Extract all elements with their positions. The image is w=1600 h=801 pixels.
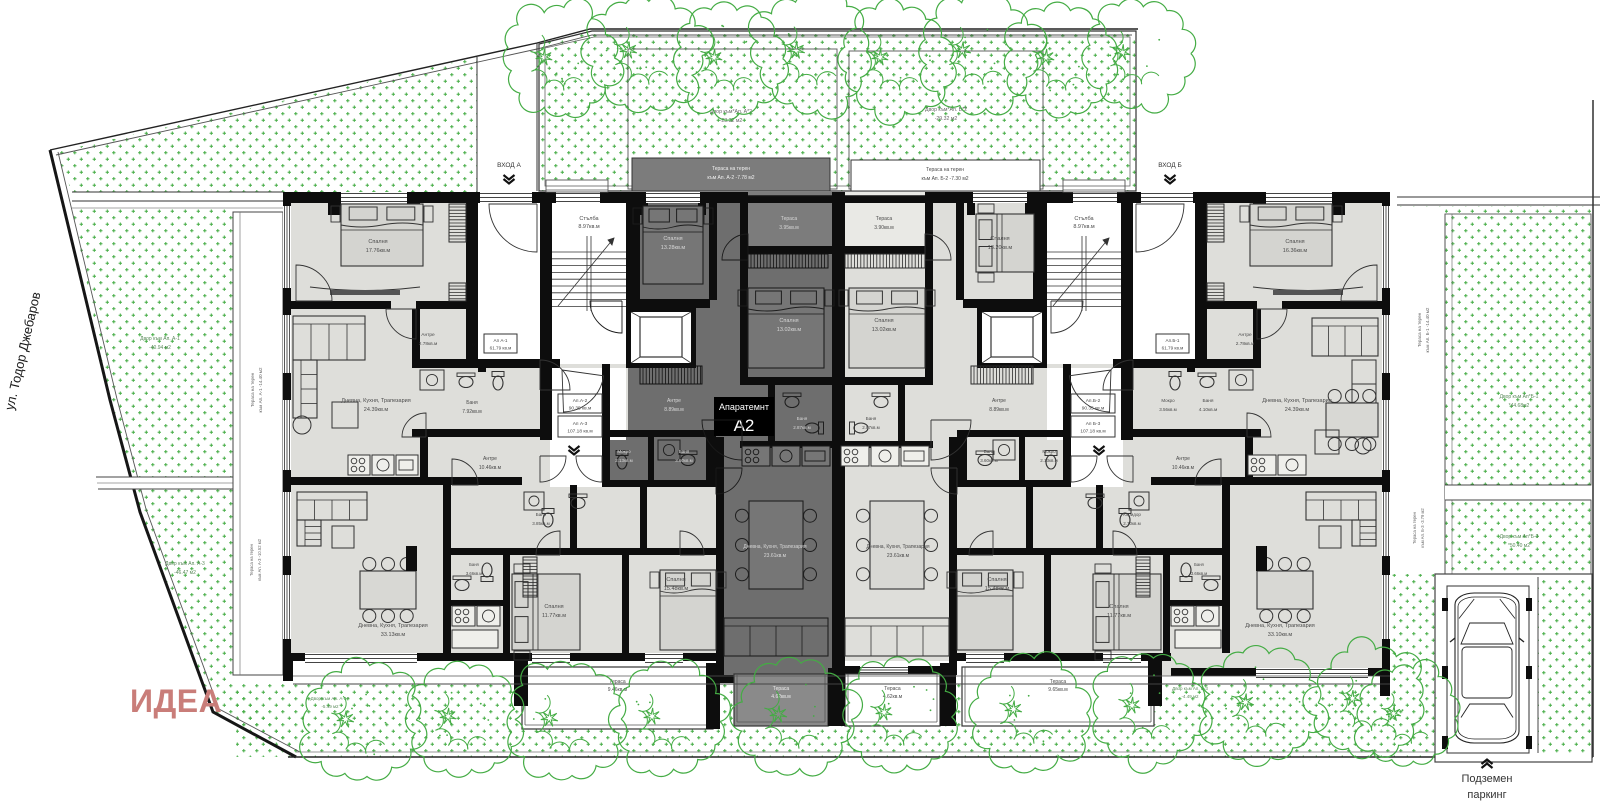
svg-text:Тераса на терен: Тераса на терен: [250, 372, 255, 407]
svg-text:Спалня: Спалня: [990, 236, 1009, 242]
svg-text:13.02кв.м: 13.02кв.м: [872, 327, 897, 333]
svg-text:Спалня: Спалня: [544, 604, 563, 610]
svg-text:»: »: [1063, 400, 1068, 409]
svg-text:Дневна, Кухня, Трапезария: Дневна, Кухня, Трапезария: [341, 398, 410, 404]
svg-text:13.28кв.м: 13.28кв.м: [661, 245, 686, 251]
svg-text:61.79 кв.м: 61.79 кв.м: [1162, 346, 1184, 351]
svg-text:9.46кв.м: 9.46кв.м: [608, 687, 628, 693]
svg-text:Тераса на терен: Тераса на терен: [249, 543, 254, 576]
svg-text:Подземен: Подземен: [1462, 773, 1513, 785]
svg-text:Антре: Антре: [1238, 332, 1252, 338]
svg-text:Мокро: Мокро: [1042, 449, 1056, 454]
svg-text:3.56кв.м: 3.56кв.м: [1159, 407, 1176, 412]
svg-text:към Ап. Б-3 -3.79 м2: към Ап. Б-3 -3.79 м2: [1420, 508, 1425, 548]
svg-text:3.66кв.м: 3.66кв.м: [1191, 571, 1207, 576]
svg-text:Антре: Антре: [421, 332, 435, 338]
svg-text:24.39кв.м: 24.39кв.м: [1285, 407, 1310, 413]
svg-text:към Ап. А-3 -10.52 м2: към Ап. А-3 -10.52 м2: [257, 538, 262, 580]
svg-text:24.39кв.м: 24.39кв.м: [364, 407, 389, 413]
svg-text:13.20кв.м: 13.20кв.м: [988, 245, 1013, 251]
svg-text:9.65кв.м: 9.65кв.м: [1048, 687, 1068, 693]
svg-text:3.85кв.м: 3.85кв.м: [532, 521, 549, 526]
svg-text:Мокро: Мокро: [1161, 398, 1175, 403]
svg-text:Тераса: Тераса: [773, 686, 790, 692]
svg-text:Ап.Б-1: Ап.Б-1: [1166, 338, 1180, 343]
svg-text:3.90кв.м: 3.90кв.м: [874, 225, 894, 231]
svg-text:Спалня: Спалня: [663, 236, 682, 242]
svg-text:Дневна, Кухня, Трапезария: Дневна, Кухня, Трапезария: [743, 544, 806, 550]
svg-text:2.78кв.м: 2.78кв.м: [419, 341, 438, 347]
svg-text:2.70кв.м: 2.70кв.м: [1123, 521, 1140, 526]
svg-text:Спалня: Спалня: [779, 318, 798, 324]
svg-text:Баня: Баня: [469, 562, 479, 567]
svg-text:-23.32 м2: -23.32 м2: [720, 118, 743, 124]
svg-text:-4.49 м2: -4.49 м2: [1181, 694, 1199, 699]
svg-text:ВХОД А: ВХОД А: [497, 162, 521, 169]
svg-text:3.60кв.м: 3.60кв.м: [980, 458, 997, 463]
svg-text:Спалня: Спалня: [987, 577, 1006, 583]
svg-text:Баня: Баня: [1194, 562, 1204, 567]
svg-text:Двор към Ап. А-1: Двор към Ап. А-1: [140, 336, 180, 342]
svg-text:13.02кв.м: 13.02кв.м: [777, 327, 802, 333]
svg-text:Баня: Баня: [797, 416, 808, 421]
svg-text:Ап А-3: Ап А-3: [573, 421, 588, 427]
svg-text:Ап А-1: Ап А-1: [494, 338, 508, 343]
svg-text:2.87кв.м: 2.87кв.м: [862, 425, 879, 430]
svg-text:Двор към Ап. А-3: Двор към Ап. А-3: [165, 561, 205, 567]
svg-text:33.10кв.м: 33.10кв.м: [1268, 632, 1293, 638]
svg-text:61.79 кв.м: 61.79 кв.м: [490, 346, 512, 351]
svg-text:Спалня: Спалня: [874, 318, 893, 324]
svg-text:«: «: [471, 339, 476, 349]
svg-text:Дневна, Кухня, Трапезария: Дневна, Кухня, Трапезария: [866, 544, 929, 550]
svg-text:10.46кв.м: 10.46кв.м: [479, 465, 502, 471]
svg-text:Ап.А-2: Ап.А-2: [573, 398, 588, 404]
svg-text:Тераса на терен: Тераса на терен: [926, 167, 964, 173]
svg-text:Ап.Б-2: Ап.Б-2: [1086, 398, 1101, 404]
svg-text:-46.47 м2: -46.47 м2: [174, 570, 196, 576]
svg-text:Дневна, Кухня, Трапезария: Дневна, Кухня, Трапезария: [1245, 623, 1314, 629]
svg-text:8.89кв.м: 8.89кв.м: [664, 407, 684, 413]
svg-text:Тераса на терен: Тераса на терен: [712, 166, 750, 172]
svg-text:4.62кв.м: 4.62кв.м: [771, 694, 791, 700]
svg-text:23.61кв.м: 23.61кв.м: [887, 553, 910, 559]
svg-text:3.95кв.м: 3.95кв.м: [779, 225, 799, 231]
svg-text:107.18 кв.м: 107.18 кв.м: [567, 429, 592, 435]
svg-text:10.46кв.м: 10.46кв.м: [1172, 465, 1195, 471]
svg-text:ВХОД Б: ВХОД Б: [1158, 162, 1182, 169]
svg-text:Тераса: Тераса: [876, 216, 893, 222]
svg-text:8.89кв.м: 8.89кв.м: [989, 407, 1009, 413]
svg-text:Тераса на терен: Тераса на терен: [1417, 312, 1422, 347]
svg-text:Антре: Антре: [992, 398, 1006, 404]
svg-text:11.77кв.м: 11.77кв.м: [542, 613, 566, 619]
svg-text:7.92кв.м: 7.92кв.м: [462, 409, 482, 415]
svg-text:към Ап. А-2 -7.78 м2: към Ап. А-2 -7.78 м2: [707, 175, 754, 181]
svg-text:2.87кв.м: 2.87кв.м: [793, 425, 810, 430]
svg-text:33.13кв.м: 33.13кв.м: [381, 632, 406, 638]
svg-text:4.10кв.м: 4.10кв.м: [1199, 407, 1218, 413]
svg-text:Баня: Баня: [1202, 398, 1213, 404]
svg-text:Дневна, Кухня, Трапезария: Дневна, Кухня, Трапезария: [358, 623, 427, 629]
svg-text:Баня: Баня: [466, 400, 478, 406]
svg-text:16.36кв.м: 16.36кв.м: [1283, 248, 1308, 254]
svg-text:-40.94 м2: -40.94 м2: [149, 345, 171, 351]
svg-text:11.77кв.м: 11.77кв.м: [1107, 613, 1131, 619]
svg-text:Дневна, Кухня, Трапезария: Дневна, Кухня, Трапезария: [1262, 398, 1331, 404]
svg-text:Двор към Ап*Б-3: Двор към Ап*Б-3: [1500, 534, 1539, 540]
svg-text:към Ап. А-1 -14.40 м2: към Ап. А-1 -14.40 м2: [258, 367, 263, 412]
svg-text:Стълба: Стълба: [579, 216, 599, 222]
svg-text:2.13кв.м: 2.13кв.м: [1040, 458, 1057, 463]
svg-text:107.18 кв.м: 107.18 кв.м: [1080, 429, 1105, 435]
svg-text:2.78кв.м: 2.78кв.м: [1236, 341, 1255, 347]
svg-text:Спалня: Спалня: [666, 577, 685, 583]
svg-text:»: »: [1196, 339, 1201, 349]
svg-text:23.61кв.м: 23.61кв.м: [764, 553, 787, 559]
svg-text:Тераса: Тераса: [884, 686, 901, 692]
svg-text:Ап Б-3: Ап Б-3: [1086, 421, 1101, 427]
svg-text:2.13кв.м: 2.13кв.м: [615, 458, 632, 463]
svg-text:Тераса: Тераса: [781, 216, 798, 222]
svg-text:-29.32 м2: -29.32 м2: [935, 116, 958, 122]
svg-text:Антре: Антре: [483, 456, 497, 462]
svg-text:Баня: Баня: [679, 449, 690, 454]
svg-text:Спалня: Спалня: [1285, 239, 1304, 245]
svg-text:Антре: Антре: [667, 398, 681, 404]
svg-text:ИДЕА: ИДЕА: [130, 683, 222, 719]
svg-text:-5.49 м2: -5.49 м2: [321, 704, 339, 709]
svg-text:8.97кв.м: 8.97кв.м: [1073, 224, 1095, 230]
svg-text:3.66кв.м: 3.66кв.м: [466, 571, 482, 576]
svg-text:«: «: [606, 400, 611, 409]
svg-text:Апаратемнт: Апаратемнт: [719, 402, 769, 412]
svg-text:Антре: Антре: [1176, 456, 1190, 462]
svg-text:*50.40 м2: *50.40 м2: [1508, 543, 1530, 549]
svg-text:Спалня: Спалня: [368, 239, 387, 245]
svg-text:Коридор: Коридор: [1123, 512, 1141, 517]
svg-text:Баня: Баня: [866, 416, 877, 421]
svg-text:4.62кв.м: 4.62кв.м: [883, 694, 903, 700]
svg-text:паркинг: паркинг: [1467, 789, 1506, 801]
svg-text:Тераса на терен: Тераса на терен: [1412, 511, 1417, 544]
svg-text:Спалня: Спалня: [1109, 604, 1128, 610]
svg-text:към Ап. Б-2 -7.30 м2: към Ап. Б-2 -7.30 м2: [921, 176, 968, 182]
svg-text:към Ап. Б-1 -14.40 м2: към Ап. Б-1 -14.40 м2: [1425, 307, 1430, 352]
svg-text:15.48кв.м: 15.48кв.м: [985, 586, 1010, 592]
svg-text:*44.68м2: *44.68м2: [1509, 403, 1530, 409]
svg-text:Мокро: Мокро: [617, 449, 631, 454]
svg-text:А2: А2: [734, 416, 755, 435]
svg-text:15.48кв.м: 15.48кв.м: [664, 586, 689, 592]
svg-text:Стълба: Стълба: [1074, 216, 1094, 222]
svg-text:8.97кв.м: 8.97кв.м: [578, 224, 600, 230]
svg-text:Баня: Баня: [536, 512, 547, 517]
svg-text:17.76кв.м: 17.76кв.м: [366, 248, 391, 254]
svg-text:Двор към Ап*Б-1: Двор към Ап*Б-1: [1500, 394, 1539, 400]
svg-text:3.60кв.м: 3.60кв.м: [675, 458, 692, 463]
svg-text:Баня: Баня: [984, 449, 995, 454]
